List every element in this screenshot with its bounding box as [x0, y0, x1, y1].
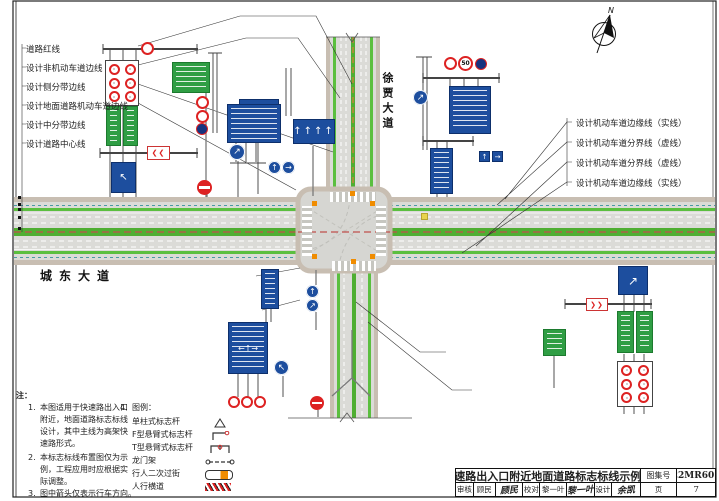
callout-right-2: 设计机动车道分界线（虚线） [576, 137, 687, 149]
mandatory-sign-icon [196, 123, 208, 135]
review-signature: 顾民 [495, 483, 523, 496]
multi-arrows-icon: ←↑→ [238, 344, 258, 353]
speed-limit-sign: 50 [458, 56, 473, 71]
arrow-up-icon: ↑ [309, 287, 316, 296]
prohibition-sign-icon [444, 57, 457, 70]
note-1-line: 速路形式。 [40, 438, 80, 450]
check-name: 黎一叶 [539, 483, 566, 496]
atlas-number-label: 图集号 [640, 469, 677, 482]
note-2-line: 例，工程应用时应根据实 [40, 464, 128, 476]
prohibition-sign-icon [638, 365, 649, 376]
arrow-up-right-icon: ↗ [309, 301, 316, 310]
chevron-left-icon: ❮❮ [152, 149, 166, 157]
corner-marker [312, 201, 317, 206]
check-signature: 黎一叶 [566, 483, 594, 496]
t-cantilever-pole-icon [205, 444, 235, 454]
guide-sign-green [106, 106, 121, 146]
intersection-preview-sign [227, 104, 281, 143]
prohibition-sign-icon [621, 365, 632, 376]
drawing-sheet: N ❮❮ ↖ ←→ ↑↑↑↑ ↗ ↑ → 50 ↗ ↑ → ↑ [0, 0, 719, 501]
arrow-up-left-icon: ↖ [278, 363, 286, 373]
two-stage-crossing-icon [205, 470, 233, 480]
review-label: 审核 [456, 483, 473, 496]
prohibition-sign-icon [196, 110, 209, 123]
intersection-preview-sign: ←↑→ [228, 322, 268, 374]
prohibition-sign-icon [638, 379, 649, 390]
arrow-up-icon: ↑ [271, 163, 278, 172]
speed-limit-value: 50 [461, 60, 469, 67]
legend-heading: 图例： [132, 402, 156, 414]
corner-marker [351, 259, 356, 264]
corner-marker [370, 254, 375, 259]
arrow-up-right-icon: ↗ [417, 93, 425, 103]
prohibition-sign-icon [196, 96, 209, 109]
signature: 黎一叶 [567, 483, 594, 496]
direction-sign-blue: ↖ [111, 162, 136, 193]
lane-arrows-icon: ↑↑↑↑ [293, 126, 335, 137]
title-block: 快速路出入口附近地面道路标志标线示例图 图集号 22MR601 审核 顾民 顾民… [455, 468, 716, 497]
no-entry-sign [197, 180, 212, 195]
legend-item-5: 行人二次过街 [132, 468, 180, 480]
prohibition-sign-icon [125, 64, 136, 75]
chevron-sign-left: ❮❮ [147, 146, 170, 160]
note-3-line: 图中箭头仅表示行车方向。 [40, 488, 136, 500]
crosswalk-west [302, 206, 312, 256]
prohibition-signs-panel [617, 361, 653, 407]
lane-assignment-sign: ↑↑↑↑ [293, 119, 335, 144]
crosswalk-icon [205, 483, 231, 491]
callout-left-3: 设计侧分带边线 [26, 81, 86, 93]
note-1-line: 设计，其中主线为高架快 [40, 426, 128, 438]
prohibition-sign-icon [109, 64, 120, 75]
callout-right-3: 设计机动车道分界线（虚线） [576, 157, 687, 169]
design-signature: 余凯 [611, 483, 640, 496]
prohibition-sign-icon [621, 392, 632, 403]
prohibition-sign-icon [109, 78, 120, 89]
arrow-right-icon: → [495, 153, 501, 161]
callout-left-4: 设计地面道路机动车道边线 [26, 100, 128, 112]
mandatory-direction-sign: → [282, 161, 295, 174]
expressway-entrance-sign: ↗ [618, 266, 648, 295]
arrow-up-right-icon: ↗ [233, 147, 241, 157]
check-label: 校对 [522, 483, 539, 496]
end-of-limit-sign [475, 58, 487, 70]
callout-right-4: 设计机动车道边缘线（实线） [576, 177, 687, 189]
callout-left-5: 设计中分带边线 [26, 119, 86, 131]
chevron-right-icon: ❯❯ [590, 301, 604, 309]
chevron-sign-right: ❯❯ [586, 298, 608, 311]
legend-item-1: 单柱式标志杆 [132, 416, 180, 428]
mandatory-direction-sign: ↖ [274, 360, 289, 375]
corner-marker [350, 191, 355, 196]
arrow-up-left-icon: ↖ [119, 172, 127, 183]
callout-right-1: 设计机动车道边缘线（实线） [576, 117, 687, 129]
detector-marker [421, 213, 428, 220]
callout-left-6: 设计道路中心线 [26, 138, 86, 150]
review-name: 顾民 [473, 483, 495, 496]
note-1-line: 本图适用于快速路出入口 [40, 402, 128, 414]
legend-item-2: F型悬臂式标志杆 [132, 429, 193, 441]
legend-item-3: T型悬臂式标志杆 [132, 442, 193, 454]
f-cantilever-pole-icon [205, 431, 235, 441]
mini-direction-sign: → [492, 151, 503, 162]
corner-marker [370, 201, 375, 206]
north-arrow-icon: N [593, 6, 616, 53]
mandatory-direction-sign: ↗ [413, 90, 428, 105]
guide-sign-green [636, 311, 653, 353]
no-entry-sign [310, 396, 324, 410]
legend-item-6: 人行横道 [132, 481, 164, 493]
mini-direction-sign: ↑ [479, 151, 490, 162]
design-label: 设计 [594, 483, 611, 496]
gantry-icon [205, 457, 235, 467]
atlas-number: 22MR601 [676, 469, 715, 482]
prohibition-sign-icon [638, 392, 649, 403]
road-vertical-north [326, 33, 380, 189]
prohibition-sign-icon [241, 396, 253, 408]
notes-heading: 注： [16, 390, 32, 402]
mandatory-direction-sign: ↗ [229, 144, 245, 160]
page-label: 页 [640, 483, 677, 496]
note-2-line: 际调整。 [40, 476, 72, 488]
note-1-line: 附近，地面道路标志标线 [40, 414, 128, 426]
title-block-row-1: 快速路出入口附近地面道路标志标线示例图 图集号 22MR601 [456, 469, 715, 483]
mandatory-direction-sign: ↗ [306, 299, 319, 312]
single-pole-icon [205, 418, 235, 428]
mandatory-direction-sign: ↑ [268, 161, 281, 174]
signature: 余凯 [616, 483, 635, 496]
note-3-no: 3. [28, 488, 36, 500]
note-1-no: 1. [28, 402, 36, 414]
prohibition-sign-icon [141, 42, 154, 55]
exit-guide-sign [261, 269, 279, 309]
prohibition-sign-icon [228, 396, 240, 408]
guide-sign-green [543, 329, 566, 356]
note-2-no: 2. [28, 452, 36, 464]
prohibition-sign-icon [125, 78, 136, 89]
guide-sign-green [617, 311, 634, 353]
guide-sign-green [123, 106, 138, 146]
title-block-row-2: 审核 顾民 顾民 校对 黎一叶 黎一叶 设计 余凯 页 7 [456, 483, 715, 496]
prohibition-sign-icon [621, 379, 632, 390]
arrow-up-right-icon: ↗ [628, 274, 638, 288]
mandatory-direction-sign: ↑ [306, 285, 319, 298]
corner-marker [312, 254, 317, 259]
callout-left-2: 设计非机动车道边线 [26, 62, 103, 74]
road-name-vertical: 徐贾大道 [379, 72, 395, 132]
callout-left-1: 道路红线 [26, 43, 60, 55]
svg-text:N: N [608, 6, 614, 15]
prohibition-sign-icon [254, 396, 266, 408]
crosswalk-east [376, 206, 386, 256]
arrow-right-icon: → [285, 163, 292, 172]
legend-no: 4. [120, 402, 128, 414]
note-2-line: 本标志标线布置图仅为示 [40, 452, 128, 464]
lane-guide-sign [430, 148, 453, 194]
guide-sign-green [172, 62, 210, 93]
road-name-horizontal: 城东大道 [40, 267, 116, 284]
signature: 顾民 [500, 483, 519, 496]
expressway-entrance-guide-sign [449, 86, 491, 134]
drawing-title: 快速路出入口附近地面道路标志标线示例图 [456, 469, 640, 482]
legend-item-4: 龙门架 [132, 455, 156, 467]
arrow-up-icon: ↑ [482, 153, 488, 161]
page-number: 7 [676, 483, 715, 496]
